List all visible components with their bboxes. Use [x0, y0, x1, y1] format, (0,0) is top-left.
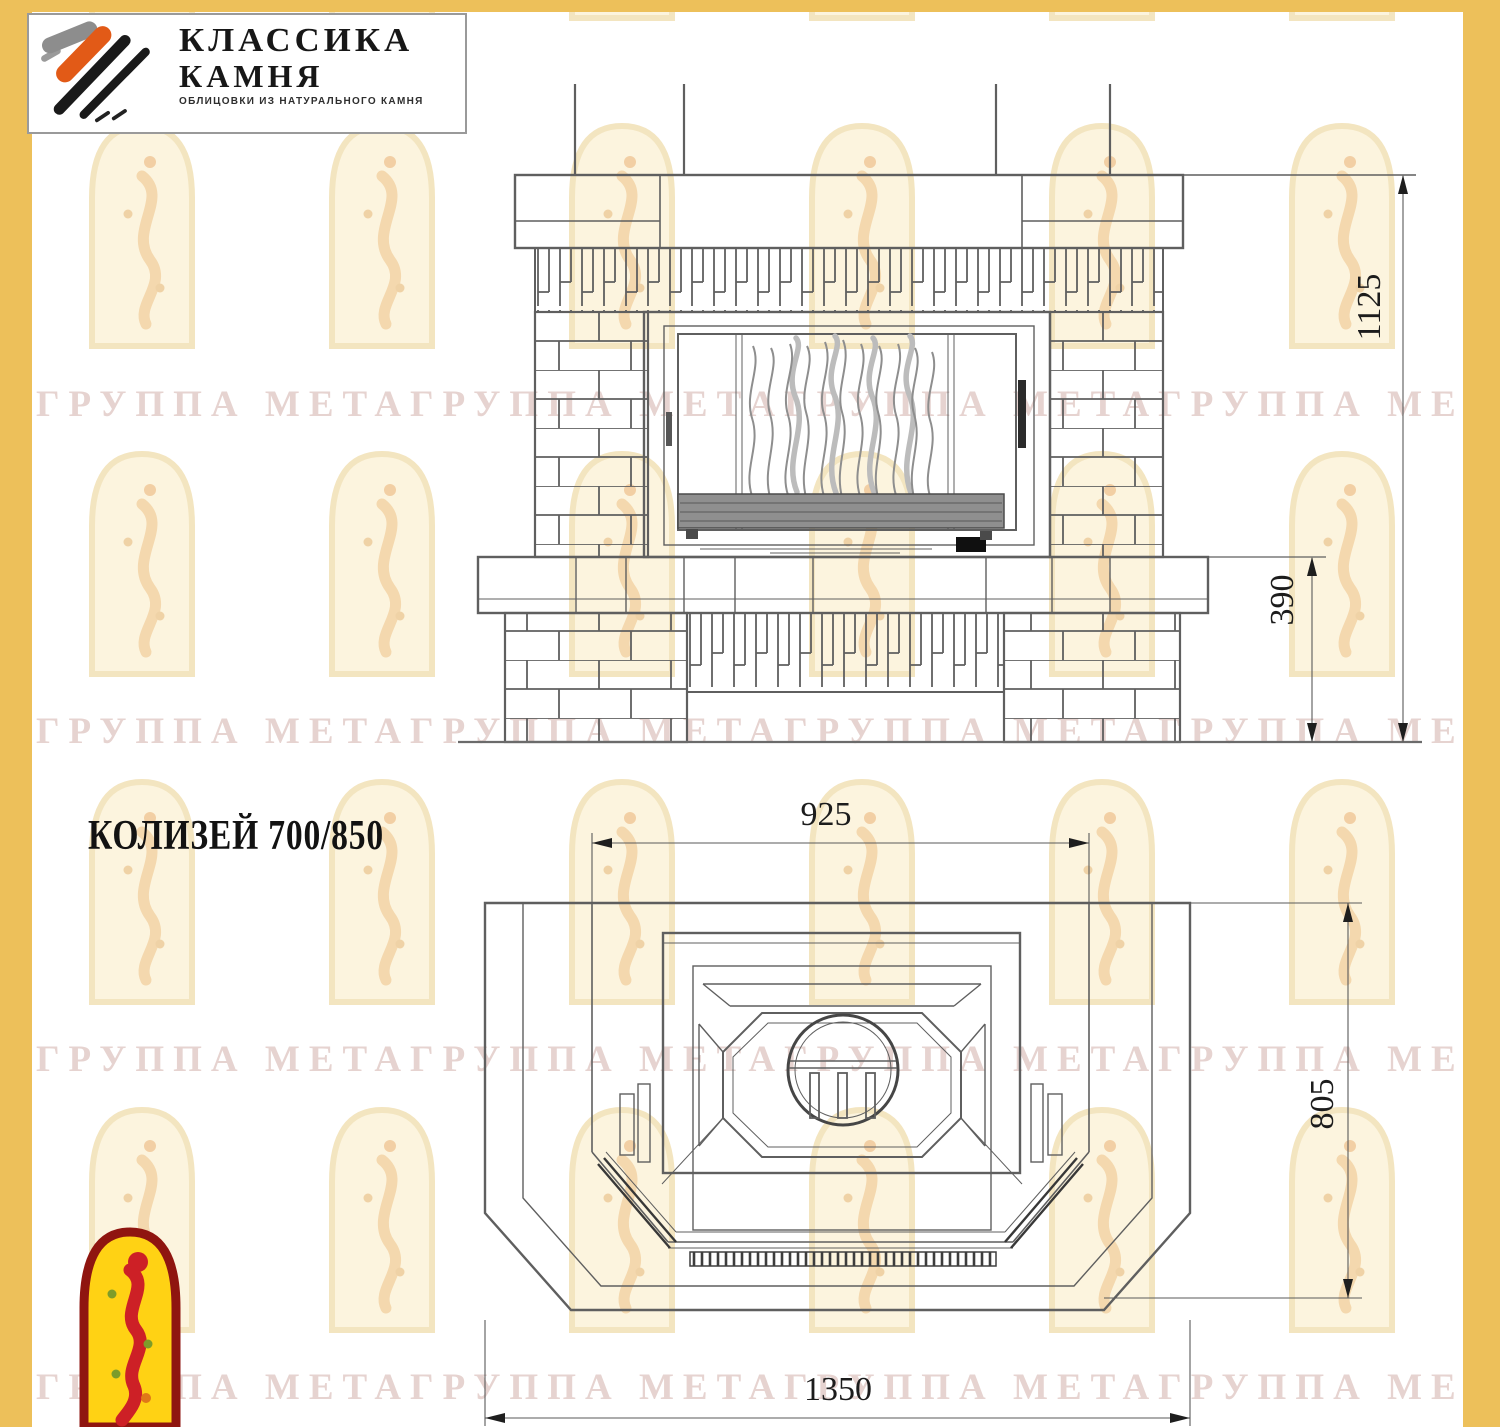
brand-title-line1: КЛАССИКА — [179, 23, 475, 59]
technical-drawing — [0, 0, 1500, 1427]
door-handle — [1018, 380, 1026, 448]
left-base-leg — [505, 613, 687, 742]
left-stone-column — [535, 312, 648, 557]
front-grille-strip — [690, 1252, 996, 1266]
brand-logo: КЛАССИКА КАМНЯ ОБЛИЦОВКИ ИЗ НАТУРАЛЬНОГО… — [27, 13, 467, 134]
dim-label-base-height: 390 — [1264, 575, 1302, 626]
dim-label-firebox-width: 925 — [801, 796, 852, 834]
chimney-pipes — [575, 84, 1110, 175]
plan-dimensions — [485, 833, 1362, 1426]
brand-tagline: ОБЛИЦОВКИ ИЗ НАТУРАЛЬНОГО КАМНЯ — [179, 96, 469, 107]
mantel-shelf — [515, 175, 1183, 248]
right-stone-column — [1050, 312, 1163, 557]
base-tile-frieze — [687, 613, 1004, 692]
plan-hearth-bench — [592, 1152, 1089, 1248]
right-base-leg — [1004, 613, 1180, 742]
front-elevation-drawing — [458, 84, 1422, 742]
plan-firebox-insert — [620, 933, 1062, 1266]
dimension-arrows — [485, 838, 1353, 1423]
model-title: КОЛИЗЕЙ 700/850 — [88, 812, 384, 860]
front-elevation-dimensions — [1307, 175, 1408, 742]
dim-label-overall-width: 1350 — [804, 1371, 872, 1409]
door-hinge — [666, 412, 672, 446]
brand-title-line2: КАМНЯ — [179, 59, 469, 93]
dim-label-total-height: 1125 — [1351, 274, 1389, 341]
tile-frieze — [535, 248, 1163, 312]
hearth-shelf — [478, 557, 1326, 613]
brush-strokes-icon — [35, 17, 185, 129]
dimension-arrows — [1307, 175, 1408, 742]
yellow-arch-figure-icon — [78, 1222, 182, 1427]
firebox — [644, 312, 1050, 557]
grille-band — [678, 494, 1004, 528]
plan-view-drawing — [485, 903, 1190, 1310]
flue-collar — [788, 1015, 898, 1125]
dim-label-depth: 805 — [1304, 1079, 1342, 1130]
